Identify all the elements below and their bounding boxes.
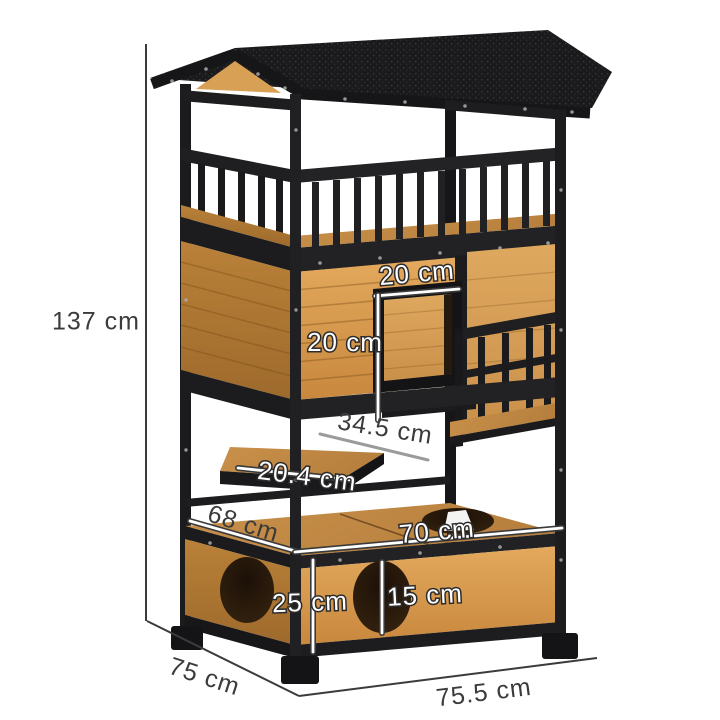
foot-front-right [542, 633, 578, 659]
side-round-opening [220, 557, 274, 623]
product-dimension-diagram: 137 cm 75 cm 75.5 cm 20 cm 20 cm 34.5 cm… [0, 0, 720, 720]
dim-label-hole-diameter: 15 cm [386, 578, 463, 612]
dim-label-base-height: 25 cm [272, 586, 349, 619]
roof-beam-left [181, 90, 301, 111]
roof [150, 30, 612, 120]
dim-label-entrance-height: 20 cm [307, 327, 383, 357]
dim-label-overall-width: 75.5 cm [435, 673, 534, 712]
cat-house-illustration: 137 cm 75 cm 75.5 cm 20 cm 20 cm 34.5 cm… [0, 0, 720, 720]
dim-label-overall-height: 137 cm [52, 308, 140, 336]
entrance-inner-shadow [444, 294, 452, 375]
foot-front-left [281, 656, 319, 684]
post-front-left [290, 94, 301, 657]
dim-label-overall-depth: 75 cm [165, 652, 243, 701]
